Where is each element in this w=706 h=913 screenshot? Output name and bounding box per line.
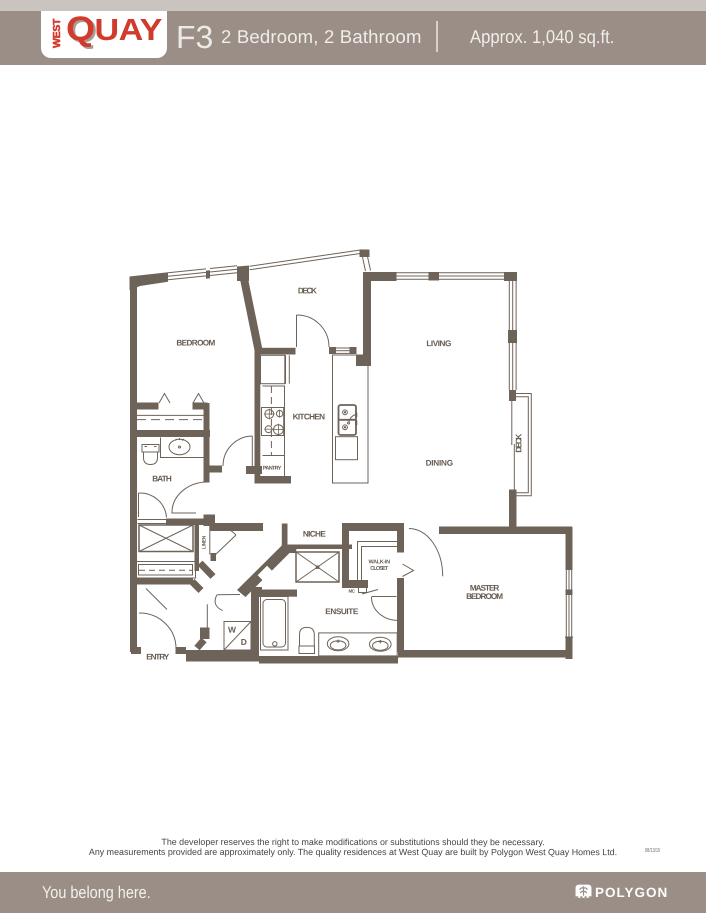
svg-text:PANTRY: PANTRY: [263, 466, 282, 472]
svg-text:BATH: BATH: [152, 474, 172, 483]
svg-text:MC: MC: [349, 589, 356, 594]
svg-text:CLOSET: CLOSET: [370, 566, 389, 572]
svg-text:W: W: [228, 625, 237, 635]
svg-text:NICHE: NICHE: [303, 530, 327, 539]
svg-text:ENTRY: ENTRY: [146, 652, 170, 661]
svg-text:KITCHEN: KITCHEN: [293, 412, 326, 421]
svg-text:BEDROOM: BEDROOM: [466, 592, 503, 601]
svg-text:ENSUITE: ENSUITE: [325, 607, 359, 616]
svg-text:DECK: DECK: [514, 434, 523, 453]
svg-text:WALK-IN: WALK-IN: [369, 559, 391, 565]
svg-text:BEDROOM: BEDROOM: [176, 338, 215, 347]
svg-text:LIVING: LIVING: [426, 339, 451, 348]
svg-text:DINING: DINING: [426, 459, 454, 468]
svg-text:D: D: [241, 637, 247, 647]
svg-text:LINEN: LINEN: [202, 535, 208, 549]
svg-text:DECK: DECK: [298, 286, 317, 295]
